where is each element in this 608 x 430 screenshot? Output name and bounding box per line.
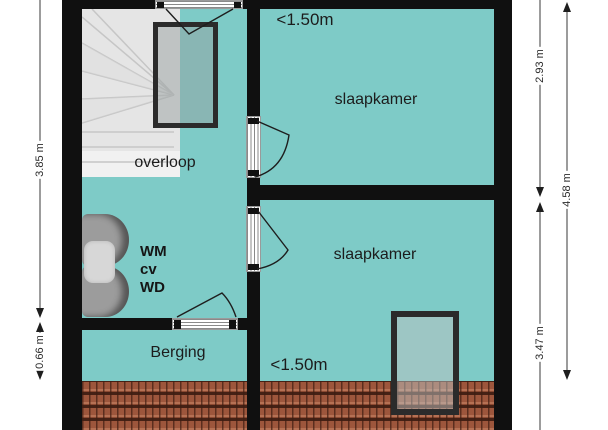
label-cv: cv	[140, 261, 167, 279]
bedroom-divider-wall	[247, 185, 494, 200]
label-wm: WM	[140, 243, 167, 261]
dimension-arrow	[36, 370, 44, 380]
floorplan-canvas: overloop slaapkamer slaapkamer Berging <…	[0, 0, 608, 430]
label-slaapkamer-bottom: slaapkamer	[334, 246, 417, 264]
dimension-arrow	[36, 308, 44, 318]
label-slaapkamer-top: slaapkamer	[335, 91, 418, 109]
right-wall	[494, 0, 512, 430]
appliance-door-panel	[84, 241, 115, 283]
dimension-right-outer: 4.58 m	[560, 171, 574, 209]
dimension-arrow	[563, 2, 571, 12]
dimension-arrow	[536, 187, 544, 197]
label-wd: WD	[140, 279, 167, 297]
dimension-arrow	[36, 322, 44, 332]
roof-window-overloop-icon	[153, 22, 218, 128]
appliance-labels: WM cv WD	[140, 243, 167, 297]
left-wall	[62, 0, 82, 430]
dimension-right-inner-top: 2.93 m	[533, 47, 547, 85]
height-restriction-bottom: <1.50m	[270, 355, 327, 375]
dimension-left-main: 3.85 m	[33, 141, 47, 179]
door-slaapkamer-top-icon	[246, 116, 261, 178]
label-overloop: overloop	[134, 154, 195, 172]
dimension-arrow	[563, 370, 571, 380]
top-wall	[62, 0, 512, 9]
height-restriction-top: <1.50m	[276, 10, 333, 30]
dimension-left-small: 0.66 m	[33, 333, 47, 371]
door-slaapkamer-bottom-icon	[246, 206, 261, 272]
door-berging-icon	[172, 318, 238, 330]
dimension-right-inner-bottom: 3.47 m	[533, 324, 547, 362]
window-top-icon	[155, 0, 243, 9]
dimension-arrow	[536, 202, 544, 212]
roof-window-slaapkamer-icon	[391, 311, 459, 415]
label-berging: Berging	[150, 344, 205, 362]
